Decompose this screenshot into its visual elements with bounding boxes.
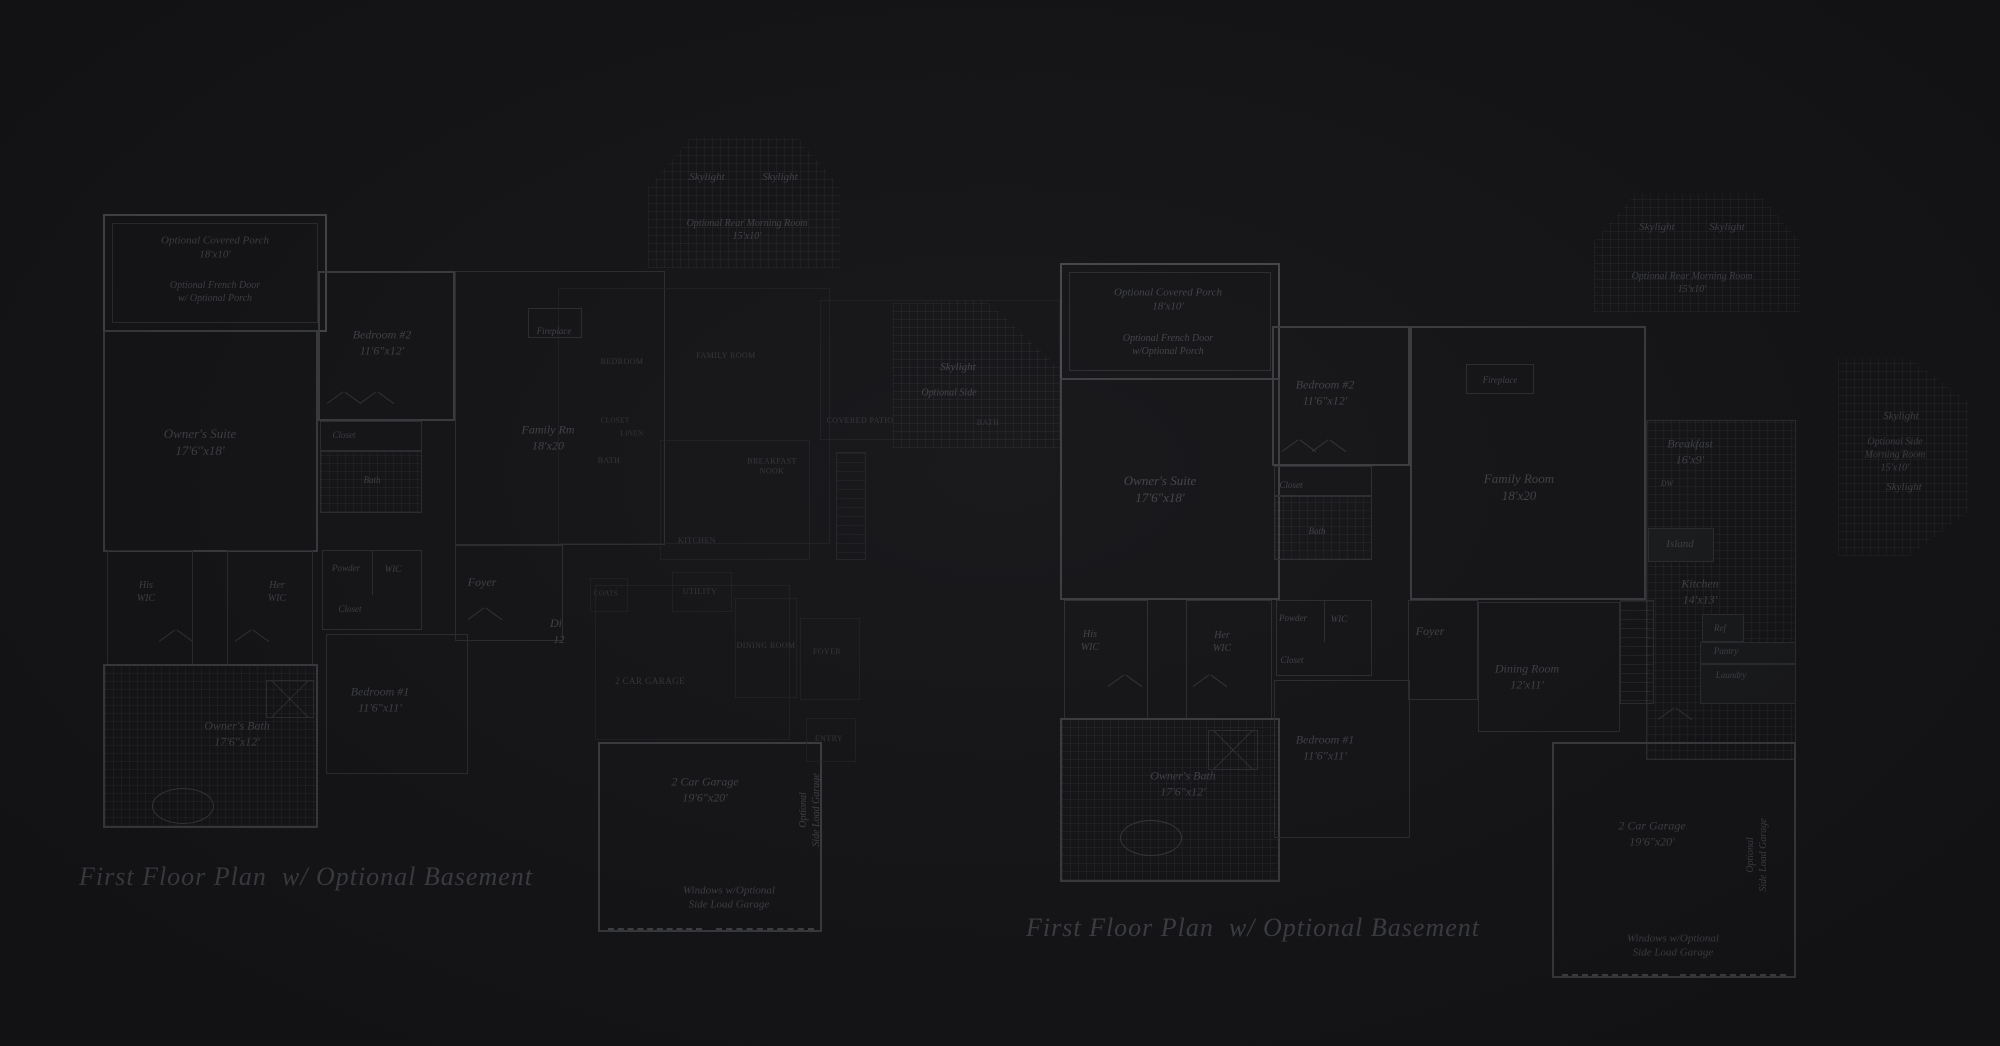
room-label: WIC [1331, 614, 1348, 626]
room-label: 2 Car Garage 19'6"x20' [1618, 818, 1685, 849]
room-label: His WIC [1081, 628, 1099, 654]
room-label: Bath [1309, 526, 1326, 538]
room-label: Closet [1279, 480, 1302, 492]
room-label: Skylight [1883, 409, 1918, 423]
room-label: Windows w/Optional Side Load Garage [1627, 932, 1719, 961]
room-label: DW [1661, 479, 1673, 489]
room-label: Foyer [1416, 624, 1445, 640]
floor-plan-right: Optional Covered Porch 18'x10'Optional F… [0, 0, 2000, 1046]
room-label: Breakfast 16'x9' [1667, 436, 1713, 467]
room-label: Dining Room 12'x11' [1495, 661, 1559, 692]
room-label: Ref [1714, 623, 1726, 635]
plan-title-right: First Floor Plan w/ Optional Basement [1026, 913, 1480, 943]
room-label: Bedroom #2 11'6"x12' [1296, 377, 1355, 408]
room-label: Pantry [1714, 646, 1739, 658]
room-label: Optional Rear Morning Room 15'x10' [1632, 270, 1753, 296]
room-label: Optional French Door w/Optional Porch [1123, 332, 1213, 358]
floor-plan-sheet: Optional Covered Porch 18'x10'Optional F… [0, 0, 2000, 1046]
room-label: Skylight [1709, 220, 1744, 234]
room-label: Family Room 18'x20 [1484, 471, 1554, 505]
room-label: Owner's Suite 17'6"x18' [1124, 473, 1196, 507]
room-label: Skylight [1886, 480, 1921, 494]
room-label: Laundry [1716, 670, 1747, 682]
room-label: Kitchen 14'x13' [1681, 576, 1718, 607]
room-label: Optional Covered Porch 18'x10' [1114, 286, 1222, 315]
room-label: Closet [1280, 655, 1303, 667]
room-labels-right: Optional Covered Porch 18'x10'Optional F… [0, 0, 2000, 1046]
room-label: Bedroom #1 11'6"x11' [1296, 732, 1355, 763]
room-label: Fireplace [1483, 375, 1518, 387]
room-label: Powder [1279, 613, 1307, 625]
room-label: Owner's Bath 17'6"x12' [1150, 768, 1216, 799]
room-label: Island [1666, 537, 1694, 551]
room-label: Optional Side Load Garage [1744, 818, 1770, 891]
room-label: Skylight [1639, 220, 1674, 234]
room-label: Her WIC [1213, 629, 1231, 655]
room-label: Optional Side Morning Room 15'x10' [1865, 436, 1926, 475]
